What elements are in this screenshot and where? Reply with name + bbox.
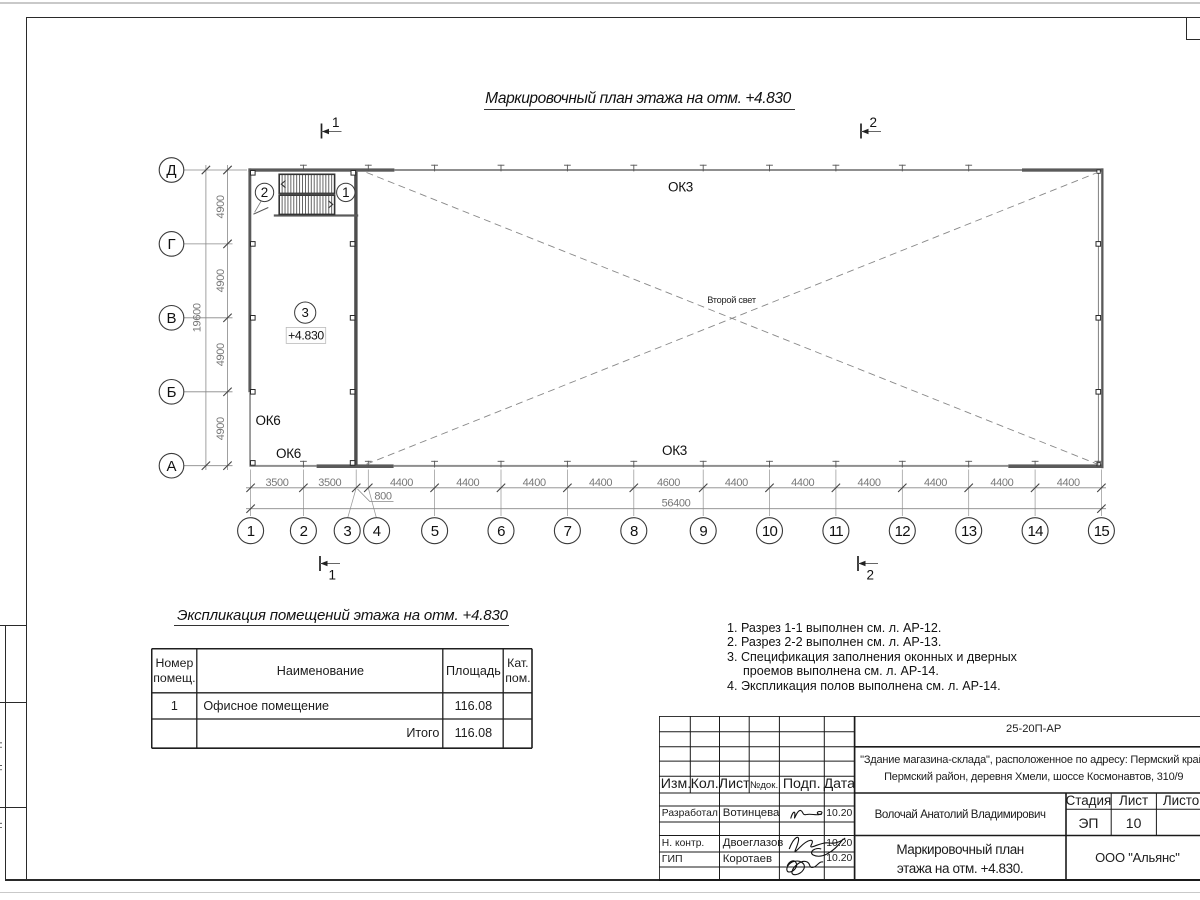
svg-text:4400: 4400	[858, 477, 881, 489]
svg-text:Г: Г	[167, 236, 175, 253]
svg-text:4900: 4900	[215, 343, 227, 366]
svg-text:3500: 3500	[265, 477, 288, 489]
svg-text:+4.830: +4.830	[288, 328, 324, 342]
svg-text:4900: 4900	[215, 269, 227, 292]
svg-text:6: 6	[497, 523, 505, 540]
svg-text:1: 1	[332, 115, 340, 130]
svg-text:9: 9	[699, 523, 707, 540]
svg-text:3: 3	[302, 305, 309, 320]
svg-text:4600: 4600	[657, 477, 680, 489]
svg-text:3: 3	[343, 523, 351, 540]
svg-text:4900: 4900	[215, 417, 227, 440]
svg-text:4: 4	[373, 523, 381, 540]
svg-text:ОК6: ОК6	[276, 446, 301, 461]
svg-text:15: 15	[1094, 523, 1110, 540]
svg-text:4400: 4400	[390, 477, 413, 489]
svg-text:19600: 19600	[192, 303, 204, 332]
svg-text:ОК3: ОК3	[668, 179, 693, 194]
svg-text:10: 10	[762, 523, 778, 540]
svg-text:4400: 4400	[990, 477, 1013, 489]
svg-text:2: 2	[261, 185, 268, 200]
svg-text:3500: 3500	[318, 477, 341, 489]
svg-text:1: 1	[247, 523, 255, 540]
svg-text:4400: 4400	[589, 477, 612, 489]
svg-text:13: 13	[961, 523, 977, 540]
svg-text:2: 2	[867, 568, 875, 583]
svg-text:8: 8	[630, 523, 638, 540]
svg-text:ОК6: ОК6	[256, 413, 281, 428]
svg-text:1: 1	[342, 185, 349, 200]
svg-text:Второй свет: Второй свет	[707, 295, 757, 305]
svg-text:2: 2	[300, 523, 308, 540]
svg-text:4400: 4400	[523, 477, 546, 489]
svg-text:А: А	[166, 458, 176, 475]
svg-text:В: В	[166, 310, 176, 327]
svg-text:14: 14	[1027, 523, 1043, 540]
svg-text:4400: 4400	[1057, 477, 1080, 489]
svg-text:4400: 4400	[791, 477, 814, 489]
svg-text:4400: 4400	[924, 477, 947, 489]
svg-text:800: 800	[374, 491, 392, 503]
svg-text:Д: Д	[166, 162, 176, 179]
svg-text:12: 12	[895, 523, 911, 540]
svg-text:11: 11	[829, 523, 844, 540]
svg-text:4400: 4400	[725, 477, 748, 489]
svg-text:4400: 4400	[456, 477, 479, 489]
svg-text:ОК3: ОК3	[662, 443, 687, 458]
svg-text:7: 7	[564, 523, 572, 540]
svg-text:4900: 4900	[215, 195, 227, 218]
svg-text:1: 1	[329, 568, 337, 583]
svg-text:5: 5	[431, 523, 439, 540]
svg-text:2: 2	[870, 115, 878, 130]
svg-text:56400: 56400	[662, 498, 691, 510]
svg-text:Б: Б	[167, 384, 177, 401]
